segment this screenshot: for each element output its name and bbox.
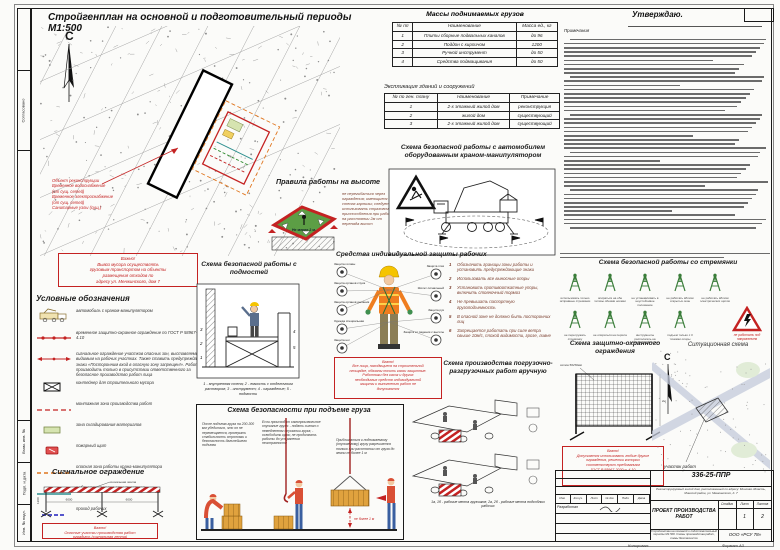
ppe-callout-label: Жилет сигнальный xyxy=(418,286,445,290)
table-header-cell: № по ген. плану xyxy=(385,94,438,103)
note-line xyxy=(564,97,746,99)
stamp-object-desc: Реконструируемый жилой дом, расположенны… xyxy=(652,488,770,496)
margin-label-vzam: Взам. инв. № xyxy=(17,420,30,462)
note-line xyxy=(570,114,762,116)
ladder-pictograms: использовать только исправные стремянкио… xyxy=(558,272,734,347)
note-line xyxy=(564,139,739,141)
note-line xyxy=(564,147,766,149)
scaffold-title: Схема безопасной работы с подмостей xyxy=(198,261,300,277)
note-line xyxy=(564,135,693,137)
scaffold-diagram: 321 45 xyxy=(196,283,300,379)
ppe-figure: Защита головыЗащита органов слухаЗащита … xyxy=(333,262,445,362)
svg-text:сигнальная лента: сигнальная лента xyxy=(110,480,136,484)
note-line xyxy=(564,168,746,170)
table-row: 2Поддон с кирпичом1200 xyxy=(393,40,558,49)
rule-item: 1Обозначить границы зоны работы и устано… xyxy=(449,262,553,273)
ladder-icon xyxy=(558,272,592,297)
legend-label: контейнер для строительного мусора xyxy=(76,380,154,385)
note-line xyxy=(570,227,756,229)
corner-stamp-box xyxy=(744,8,774,22)
stamp-sheet-desc: Стройгенплан на основной и подготовитель… xyxy=(651,530,717,540)
note-line xyxy=(564,177,737,179)
ladder-icon xyxy=(628,309,662,334)
height-rules-diagram: Не менее 2 м. xyxy=(268,189,338,253)
stamp-sheet-value: 1 xyxy=(736,514,753,520)
note-line xyxy=(564,101,741,103)
ladder-icon xyxy=(628,272,662,297)
manual-loading-title: Схема производства погрузочно-разгрузочн… xyxy=(440,360,556,376)
lifting-worker-1 xyxy=(206,494,242,529)
note-line xyxy=(564,51,756,53)
note-line xyxy=(564,143,735,145)
electric-warning-caption: не работать под напряжением xyxy=(724,333,770,341)
stamp-header-row: Изм.Кол.уч.Лист№ док.Подп.Дата xyxy=(555,494,650,503)
note-line xyxy=(564,214,735,216)
ladder-icon xyxy=(663,272,697,297)
ladder-caption: не работать вблизи электрических щитов xyxy=(698,297,732,304)
scaffold-caption: 1 - внутренняя стена; 2 - емкость с отде… xyxy=(196,382,300,397)
note-line xyxy=(564,198,752,200)
manual-loading-caption: 1а, 1б - рабочие места грузчиков; 2а, 2б… xyxy=(428,500,548,508)
stamp-signature xyxy=(598,504,628,512)
note-line xyxy=(564,156,758,158)
stamp-doc-title: ПРОЕКТ ПРОИЗВОДСТВА РАБОТ xyxy=(650,508,718,520)
table-header-cell: Примечание xyxy=(510,94,560,103)
ladder-caption: не устанавливать в неустойчивое положени… xyxy=(628,297,662,307)
fence-line-icon xyxy=(36,330,72,348)
rule-item: 2Использовать все выносные опоры xyxy=(449,276,553,281)
loads-table-title: Массы поднимаемых грузов xyxy=(392,11,558,18)
note-line xyxy=(564,47,760,49)
note-line xyxy=(564,72,735,74)
note-line xyxy=(564,106,737,108)
ladder-icon xyxy=(663,309,697,334)
stamp-header-cell: Дата xyxy=(634,494,650,503)
note-line xyxy=(564,85,680,87)
rule-item: 6Запрещается работать при силе ветра свы… xyxy=(449,328,553,339)
note-line xyxy=(564,43,764,45)
signal-line-icon xyxy=(36,351,72,369)
rule-item: 5В опасной зоне не должно быть посторонн… xyxy=(449,314,553,325)
note-line xyxy=(564,194,756,196)
table-row: 2жилой домсуществующий xyxy=(385,111,560,120)
ladder-icon xyxy=(558,309,592,334)
signal-fence-diagram: сигнальная лента 6000 6000 1200 xyxy=(36,478,168,522)
lifting-worker-3: не более 1 м xyxy=(331,418,395,529)
stamp-header-cell: Подп. xyxy=(618,494,634,503)
note-line xyxy=(564,219,766,221)
note-line xyxy=(564,223,762,225)
red-dash-icon xyxy=(36,401,72,419)
note-line xyxy=(570,189,758,191)
ladder-title: Схема безопасной работы со стремянки xyxy=(582,259,754,266)
stamp-sheets-value: 2 xyxy=(753,514,772,520)
legend-label: автомобиль с краном-манипулятором xyxy=(76,308,153,313)
drawing-sheet: Согласовано Взам. инв. № Подп. и дата Ин… xyxy=(0,0,780,550)
legend-item: контейнер для строительного мусора xyxy=(36,380,214,398)
ladder-icon xyxy=(593,309,627,334)
crane-scheme-diagram xyxy=(388,168,556,256)
situational-map: С xyxy=(652,350,770,476)
electric-warning-icon xyxy=(732,306,762,332)
note-line xyxy=(564,173,741,175)
stamp-sheet-label: Лист xyxy=(736,502,753,506)
table-row: 1Плиты сборные подвальных каналовдо 96 xyxy=(393,31,558,40)
format-label: Формат А3 xyxy=(722,543,744,548)
stamp-stage-label: Стадия xyxy=(718,502,736,506)
note-line xyxy=(564,160,660,162)
legend-title: Условные обозначения xyxy=(36,294,130,303)
signal-fence-title: Сигнальное ограждение xyxy=(52,467,144,476)
copied-label: Копировал: xyxy=(628,543,649,548)
svg-text:6000: 6000 xyxy=(126,498,133,502)
note-line xyxy=(564,93,750,95)
height-rules-title: Правила работы на высоте xyxy=(276,177,396,186)
stamp-header-cell: Кол.уч. xyxy=(571,494,587,503)
stamp-doc-code: 336-25-ППР xyxy=(650,472,772,479)
table-row: 4Средства подмащиваниядо 50 xyxy=(393,58,558,67)
crane-scheme-title: Схема безопасной работы с автомобилем об… xyxy=(390,144,556,160)
situational-site-label: участок работ xyxy=(664,464,696,469)
note-line xyxy=(570,39,766,41)
approve-label: Утверждаю. xyxy=(632,10,683,19)
explication-table: № по ген. плануНаименованиеПримечание12-… xyxy=(384,93,560,129)
ladder-pictogram: использовать только исправные стремянки xyxy=(558,272,592,307)
manual-loading-diagram xyxy=(405,394,557,506)
explication-title: Экспликация зданий и сооружений xyxy=(384,84,560,90)
note-line xyxy=(564,202,748,204)
crane-rules-list: 1Обозначить границы зоны работы и устано… xyxy=(449,262,553,342)
legend-label: пожарный щит xyxy=(76,443,106,448)
note-line xyxy=(564,60,713,62)
ppe-title: Средства индивидуальной защиты рабочих xyxy=(336,251,546,258)
ppe-callout-label: Защита ног xyxy=(334,338,350,342)
green-box-icon xyxy=(36,422,72,440)
truck-icon xyxy=(36,308,72,327)
note-line xyxy=(570,76,764,78)
stamp-sheets-label: Листов xyxy=(753,502,772,506)
ppe-callout-label: Защита органов дыхания xyxy=(334,300,370,304)
legend-label: зона складирования материалов xyxy=(76,422,141,427)
table-header-cell: Наименование xyxy=(413,23,516,32)
ppe-callout-label: Защита от падения с высоты xyxy=(403,330,444,334)
note-line xyxy=(564,64,744,66)
svg-text:1200: 1200 xyxy=(36,497,40,504)
note-line xyxy=(564,110,725,112)
ladder-pictogram: не работать вблизи электрических щитов xyxy=(698,272,732,307)
svg-text:Не менее 2 м.: Не менее 2 м. xyxy=(292,228,316,232)
margin-label-inv: Инв. № подл. xyxy=(17,504,30,540)
legend-item: зона складирования материалов xyxy=(36,422,214,440)
ppe-callout-label: Защита органов слуха xyxy=(334,281,365,285)
ladder-caption: опираться на обе тетивы обеими ногами xyxy=(593,297,627,304)
ladder-icon xyxy=(593,272,627,297)
table-row: 32-х этажный жилой домсуществующий xyxy=(385,120,560,129)
table-row: 3Ручной инструментдо 50 xyxy=(393,49,558,58)
plan-annotation: Объект реконструкции Временное водоснабж… xyxy=(52,178,152,211)
note-line xyxy=(564,210,672,212)
stamp-header-cell: Изм. xyxy=(555,494,571,503)
stamp-header-cell: № док. xyxy=(602,494,618,503)
table-header-cell: Наименование xyxy=(437,94,510,103)
legend-label: монтажная зона производства работ xyxy=(76,401,152,406)
table-header-cell: № пп xyxy=(393,23,413,32)
ladder-caption: использовать только исправные стремянки xyxy=(558,297,592,304)
note-line xyxy=(564,164,750,166)
data-table: № по ген. плануНаименованиеПримечание12-… xyxy=(384,93,560,129)
important-note-waste: Важно! Вывоз мусора осуществлять грузовы… xyxy=(58,253,198,287)
approve-signature-line xyxy=(628,26,762,27)
svg-text:6000: 6000 xyxy=(66,498,73,502)
legend-item: сигнальное ограждение участков опасных з… xyxy=(36,351,214,377)
note-line xyxy=(564,118,760,120)
svg-text:не более 1 м: не более 1 м xyxy=(354,517,375,521)
important-note-ppe: Важно! Все лица, находящиеся на строител… xyxy=(334,357,442,399)
fire-shield-icon xyxy=(36,443,72,461)
ladder-pictogram: не устанавливать в неустойчивое положени… xyxy=(628,272,662,307)
legend-label: временное защитно-охранное ограждение по… xyxy=(76,330,214,341)
legend-item: пожарный щит xyxy=(36,443,214,461)
note-line xyxy=(564,206,744,208)
table-header-cell: Масса ед., кг xyxy=(516,23,557,32)
notes-title: Примечания xyxy=(564,28,589,33)
stamp-header-cell: Лист xyxy=(587,494,603,503)
legend-item: монтажная зона производства работ xyxy=(36,401,214,419)
svg-text:сетка 50х50мм: сетка 50х50мм xyxy=(560,363,582,367)
ladder-pictogram: не работать вблизи открытых окон xyxy=(663,272,697,307)
stamp-developed-label: Разработал xyxy=(557,505,578,509)
important-note-signal: Важно! Опасные участки производства рабо… xyxy=(42,523,158,539)
lifting-title: Схема безопасности при подъеме груза xyxy=(202,407,396,414)
legend-label: сигнальное ограждение участков опасных з… xyxy=(76,351,214,377)
lifting-worker-2 xyxy=(274,418,303,529)
ladder-icon xyxy=(698,272,732,297)
lifting-diagram: не более 1 м xyxy=(198,418,400,536)
note-line xyxy=(560,253,770,255)
notes-continuation-lines xyxy=(560,250,770,258)
note-line xyxy=(564,89,754,91)
note-line xyxy=(564,55,752,57)
ppe-callout-label: Защита головы xyxy=(334,262,355,266)
situational-title: Ситуационная схема xyxy=(668,342,768,348)
ppe-callout-label: Защита рук xyxy=(428,308,445,312)
container-icon xyxy=(36,380,72,398)
note-line xyxy=(564,131,748,133)
rule-item: 4Не превышать паспортную грузоподъемност… xyxy=(449,299,553,310)
legend-item: автомобиль с краном-манипулятором xyxy=(36,308,214,327)
note-line xyxy=(564,181,768,183)
note-line xyxy=(570,152,760,154)
data-table: № ппНаименованиеМасса ед., кг1Плиты сбор… xyxy=(392,22,558,67)
stamp-company: ООО «РСУ 78» xyxy=(718,532,772,537)
note-line xyxy=(564,127,752,129)
legend-item: временное защитно-охранное ограждение по… xyxy=(36,330,214,348)
svg-text:2: 2 xyxy=(199,341,203,346)
note-line xyxy=(564,68,739,70)
margin-label-agreed: Согласовано xyxy=(17,70,30,150)
ppe-callout-label: Одежда специальная xyxy=(334,319,364,323)
loads-table: № ппНаименованиеМасса ед., кг1Плиты сбор… xyxy=(392,22,558,67)
rule-item: 3Установить противооткатные упоры, включ… xyxy=(449,285,553,296)
note-line xyxy=(564,185,705,187)
ladder-pictogram: опираться на обе тетивы обеими ногами xyxy=(593,272,627,307)
note-line xyxy=(564,122,756,124)
reconstructed-building-outline xyxy=(148,70,232,197)
table-row: 12-х этажный жилой домреконструкция xyxy=(385,102,560,111)
note-line xyxy=(564,80,762,82)
svg-text:С: С xyxy=(664,352,671,362)
margin-label-podp: Подп. и дата xyxy=(17,462,30,504)
ladder-caption: не работать вблизи открытых окон xyxy=(663,297,697,304)
ladder-caption: не опираться на перила xyxy=(593,334,627,337)
ppe-callout-label: Защита глаз xyxy=(427,264,445,268)
notes-text-lines xyxy=(564,36,768,229)
